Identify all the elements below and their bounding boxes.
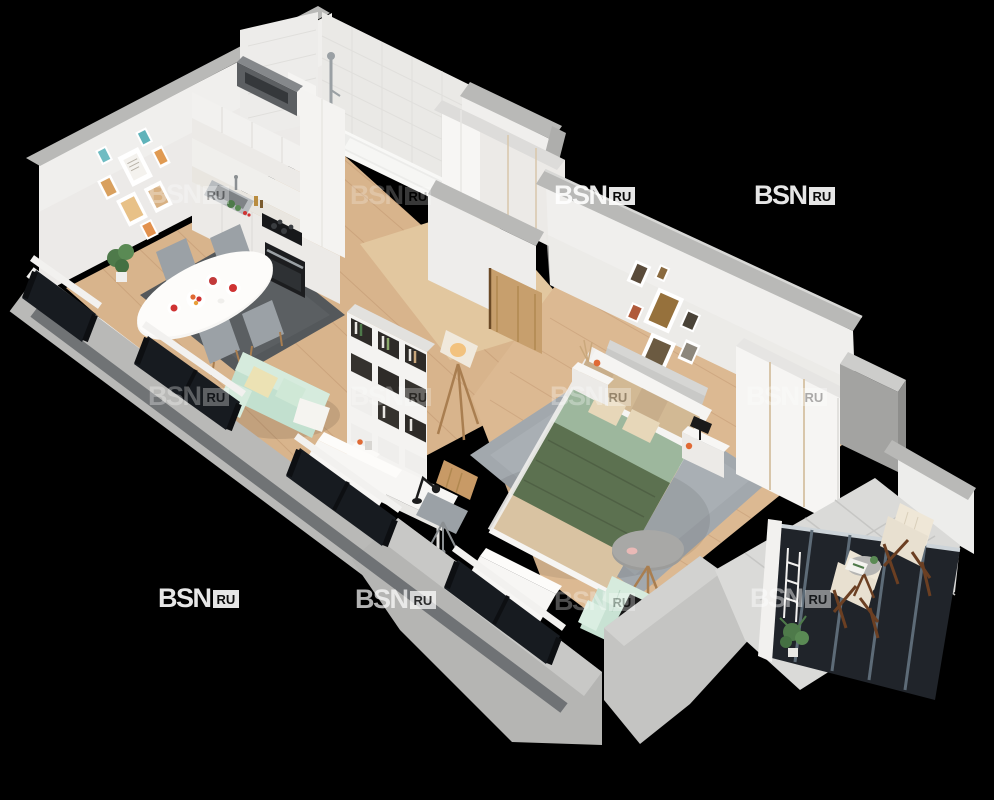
apartment-3d-scene — [0, 0, 994, 800]
orange-candle — [594, 360, 601, 367]
floorplan-render: BSNRUBSNRUBSNRUBSNRUBSNRUBSNRUBSNRUBSNRU… — [0, 0, 994, 800]
orange-vase — [686, 443, 692, 449]
table-plant — [870, 556, 878, 564]
pink-cup — [627, 548, 638, 555]
